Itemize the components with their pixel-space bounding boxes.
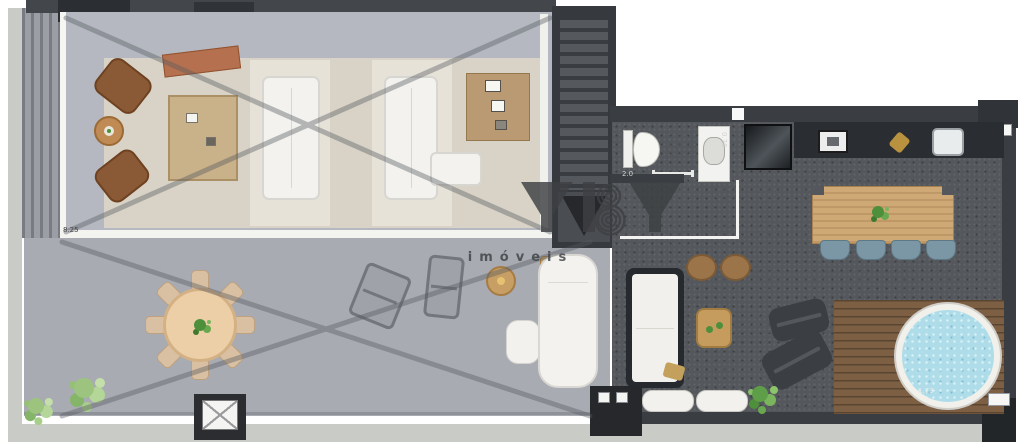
floor-plan: 8.25 2.0 0.70 1.73 [0, 0, 1024, 448]
media-console [466, 73, 530, 141]
kitchen-sink [818, 130, 848, 153]
balcony-ledge [8, 424, 1016, 442]
yby-logo-icon [517, 182, 687, 244]
sofa-chaise-extension [430, 152, 482, 186]
bench [642, 390, 694, 412]
table-notch [812, 186, 824, 195]
dimension-label: 0.70 [720, 132, 727, 148]
plant [752, 386, 768, 402]
pouf [720, 254, 751, 281]
skylight-box [194, 394, 246, 440]
terrace-dining-set [152, 277, 248, 373]
dining-chair [856, 240, 886, 260]
terrace-plant [74, 378, 94, 398]
coffee-table [168, 95, 238, 181]
table-notch [942, 186, 954, 195]
terrace-edge-line [24, 412, 610, 415]
watermark-logo: YBY imóveis [432, 182, 602, 272]
toilet-icon [623, 130, 633, 168]
sofa [262, 76, 320, 200]
bamboo-planter [22, 8, 60, 238]
side-table [94, 116, 124, 146]
staircase-treads [560, 20, 608, 190]
terrace-pouf [506, 320, 540, 364]
wall-window-gap [732, 108, 744, 120]
lounge-coffee-table [696, 308, 732, 348]
shower-glass [744, 124, 792, 170]
glass-partition [736, 180, 739, 239]
skylight-cross-icon [202, 400, 238, 430]
left-ledge [8, 8, 22, 442]
hot-tub [896, 304, 1000, 408]
dimension-label: 2.0 [622, 171, 633, 178]
bench [696, 390, 748, 412]
dimension-label: 1.73 [918, 388, 934, 395]
table-plant [194, 319, 206, 331]
fireplace-unit [590, 386, 642, 436]
dining-chair [820, 240, 850, 260]
towel-bar-cap [691, 170, 694, 177]
wall-top-right [610, 106, 1008, 122]
wall-right [1002, 106, 1016, 418]
dimension-label: 8.25 [63, 227, 79, 234]
watermark-subtitle: imóveis [432, 250, 602, 265]
dining-chair [891, 240, 921, 260]
chaise-longue [538, 254, 598, 388]
outlet-box [988, 393, 1010, 406]
terrace-plant [28, 398, 44, 414]
glass-wall [60, 12, 66, 240]
cooktop [932, 128, 964, 156]
pouf [686, 254, 717, 281]
dining-chair [926, 240, 956, 260]
table-plant [872, 206, 884, 218]
